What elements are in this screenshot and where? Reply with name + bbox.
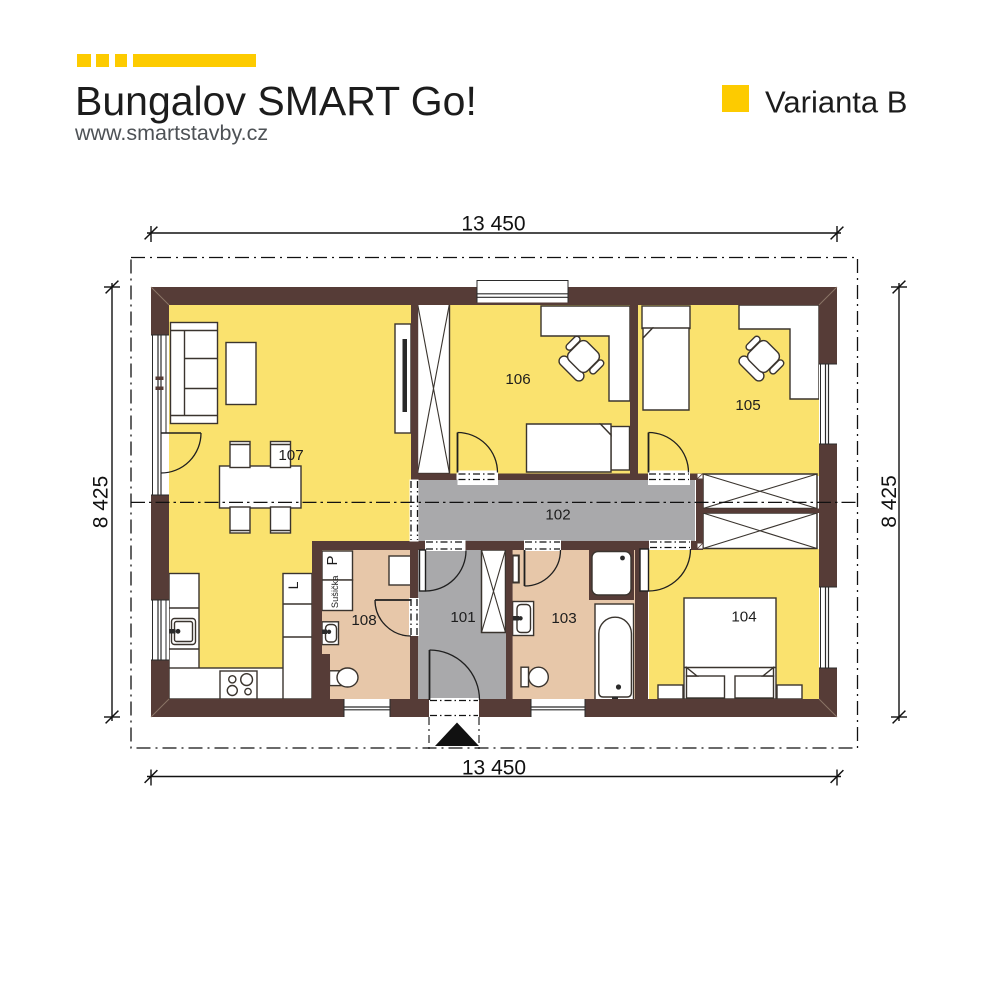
svg-text:102: 102 <box>545 507 570 524</box>
svg-text:106: 106 <box>505 371 530 388</box>
svg-text:105: 105 <box>735 397 760 414</box>
svg-text:8 425: 8 425 <box>90 476 113 529</box>
svg-text:Varianta B: Varianta B <box>765 85 907 120</box>
svg-text:104: 104 <box>731 609 756 626</box>
svg-text:108: 108 <box>351 612 376 629</box>
svg-text:P: P <box>324 555 341 565</box>
svg-text:8 425: 8 425 <box>878 475 901 528</box>
svg-text:107: 107 <box>278 447 303 464</box>
svg-text:Bungalov SMART Go!: Bungalov SMART Go! <box>75 78 477 124</box>
svg-text:L: L <box>285 581 301 589</box>
svg-text:Sušička: Sušička <box>330 575 340 608</box>
svg-text:13 450: 13 450 <box>462 757 526 780</box>
svg-text:101: 101 <box>450 609 475 626</box>
svg-text:13 450: 13 450 <box>461 213 525 236</box>
svg-text:103: 103 <box>551 610 576 627</box>
svg-text:www.smartstavby.cz: www.smartstavby.cz <box>74 121 268 145</box>
